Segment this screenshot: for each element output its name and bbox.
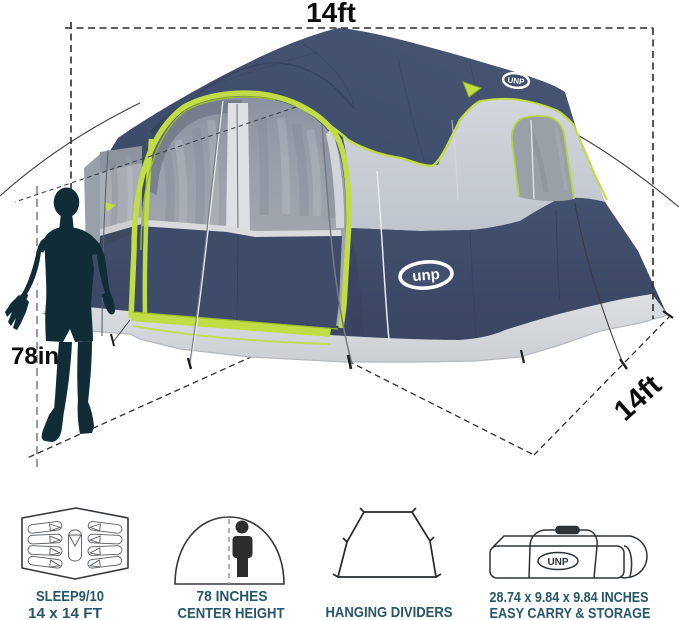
svg-text:unp: unp	[412, 266, 441, 285]
svg-text:78 INCHES: 78 INCHES	[197, 588, 268, 605]
svg-text:HANGING DIVIDERS: HANGING DIVIDERS	[326, 604, 453, 620]
svg-text:UNP: UNP	[547, 557, 568, 568]
svg-text:SLEEP9/10: SLEEP9/10	[36, 588, 104, 605]
svg-text:78in: 78in	[11, 343, 59, 370]
svg-text:EASY CARRY & STORAGE: EASY CARRY & STORAGE	[490, 606, 651, 620]
svg-text:CENTER HEIGHT: CENTER HEIGHT	[178, 605, 285, 620]
svg-text:14ft: 14ft	[306, 0, 356, 28]
svg-text:28.74 x 9.84 x 9.84 INCHES: 28.74 x 9.84 x 9.84 INCHES	[490, 590, 649, 606]
svg-text:14 x 14 FT: 14 x 14 FT	[28, 605, 102, 620]
